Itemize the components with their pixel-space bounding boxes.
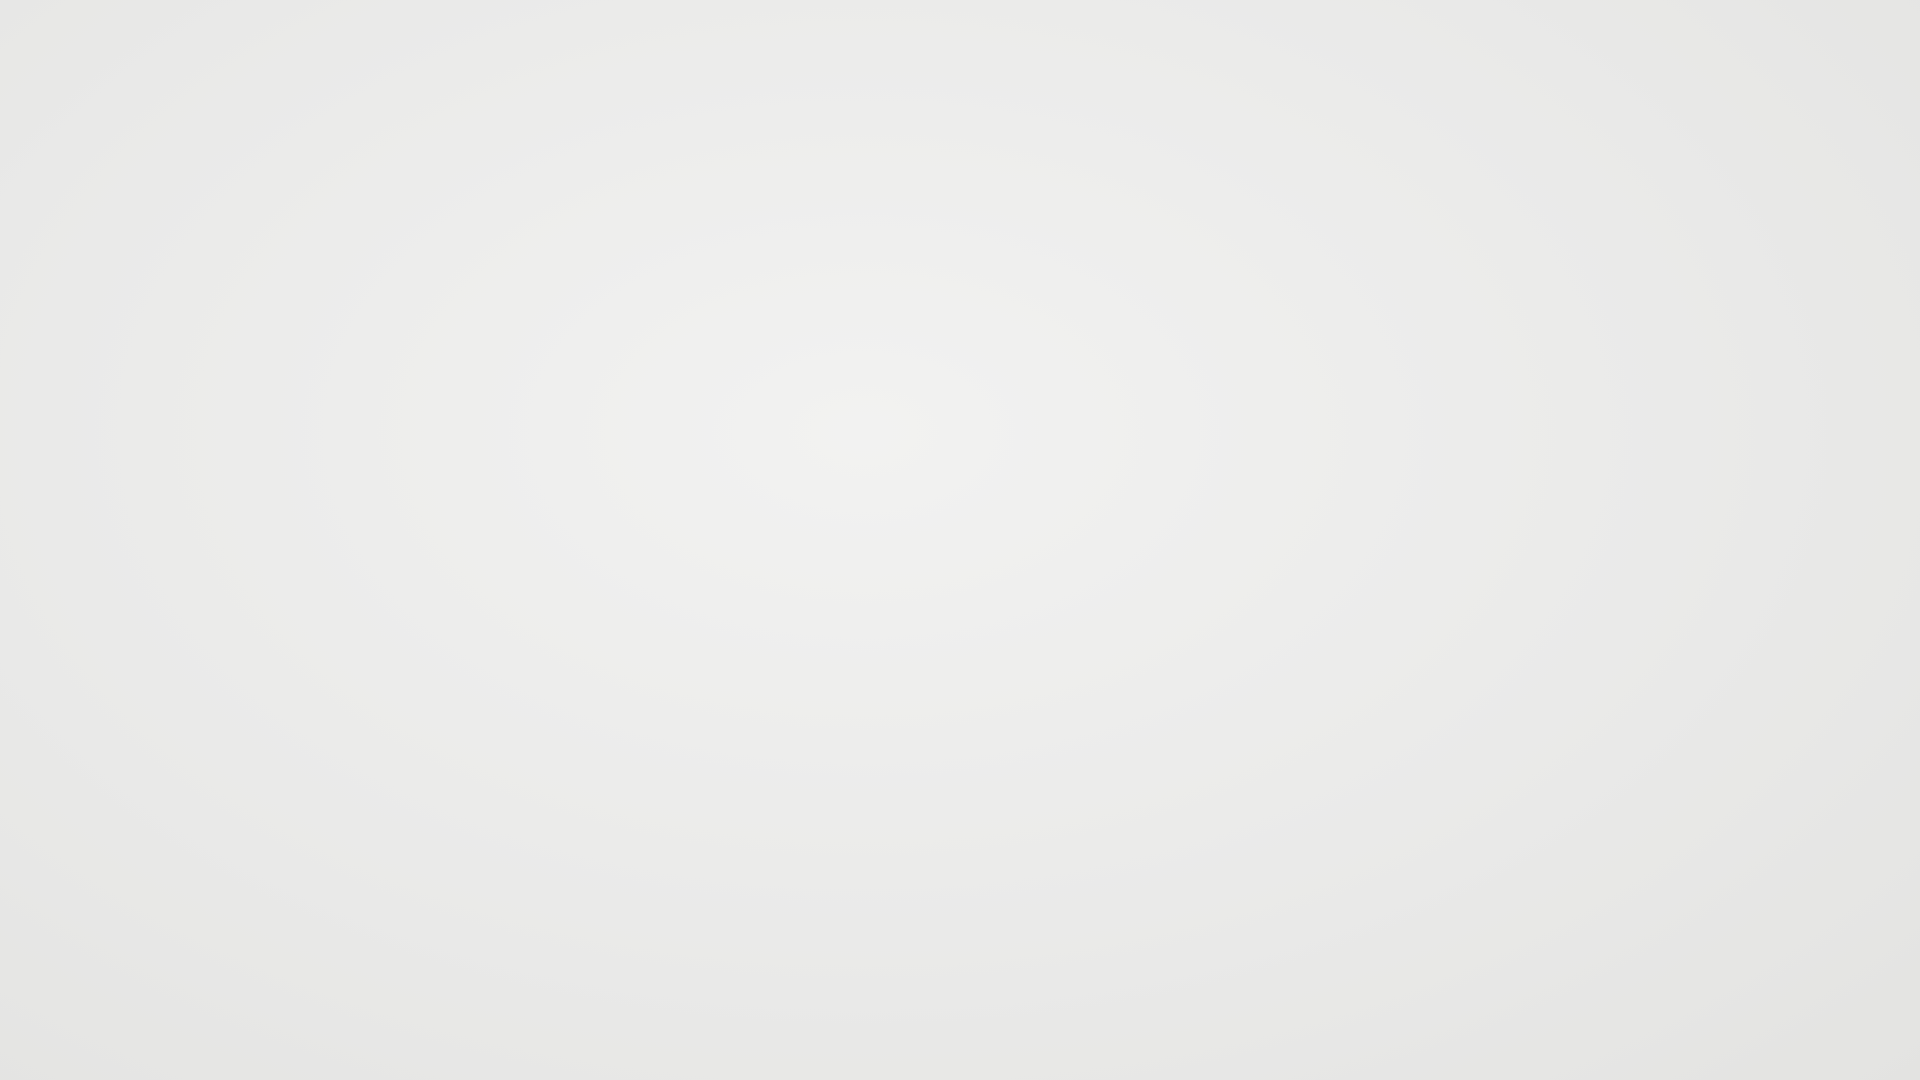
site-plan-render — [0, 0, 1920, 1080]
aerial-render-stage — [0, 0, 1920, 1080]
